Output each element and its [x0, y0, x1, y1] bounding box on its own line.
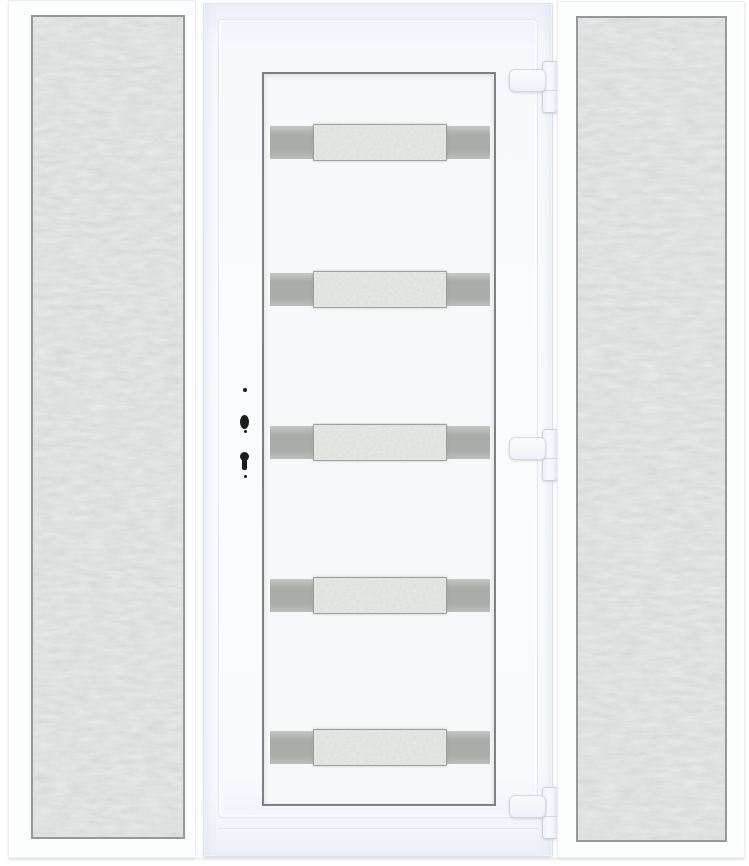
- strip-cap-right: [447, 731, 490, 764]
- door-unit: [203, 3, 553, 857]
- frosted-strip-texture: [314, 272, 446, 307]
- hinge-leaf: [509, 69, 546, 92]
- strip-cap-left: [270, 426, 313, 459]
- frosted-glass-texture: [578, 18, 725, 840]
- hinge-leaf: [509, 795, 546, 818]
- door-hinge-bottom: [507, 787, 554, 839]
- strip-cap-right: [447, 426, 490, 459]
- frosted-strip-texture: [314, 425, 446, 460]
- strip-cap-left: [270, 579, 313, 612]
- ground-shadow: [8, 858, 744, 861]
- screw-bore-icon: [244, 475, 247, 478]
- glass-strip: [270, 273, 490, 306]
- screw-bore-icon: [243, 388, 247, 392]
- strip-cap-right: [447, 579, 490, 612]
- left-sidelight-frosted-glass: [31, 15, 185, 839]
- screw-bore-icon: [244, 430, 247, 433]
- strip-cap-right: [447, 273, 490, 306]
- strip-frosted-center: [313, 271, 447, 308]
- frosted-strip-texture: [314, 125, 446, 160]
- keyhole-icon: [242, 459, 247, 470]
- cylinder-bore-icon: [240, 415, 249, 429]
- door-glass-panel: [262, 72, 496, 806]
- strip-cap-left: [270, 126, 313, 159]
- glass-strip: [270, 126, 490, 159]
- strip-cap-right: [447, 126, 490, 159]
- right-sidelight-panel: [557, 1, 745, 858]
- strip-cap-left: [270, 273, 313, 306]
- strip-cap-left: [270, 731, 313, 764]
- glass-strip: [270, 426, 490, 459]
- left-sidelight-panel: [8, 0, 196, 858]
- frosted-strip-texture: [314, 578, 446, 613]
- door-hinge-top: [507, 61, 554, 113]
- strip-frosted-center: [313, 424, 447, 461]
- strip-frosted-center: [313, 124, 447, 161]
- strip-frosted-center: [313, 729, 447, 766]
- hinge-leaf: [509, 437, 546, 460]
- door-hinge-middle: [507, 429, 554, 481]
- frosted-strip-texture: [314, 730, 446, 765]
- strip-frosted-center: [313, 577, 447, 614]
- glass-strip: [270, 731, 490, 764]
- door-product-photo: [0, 0, 749, 866]
- door-sill-line: [218, 828, 538, 829]
- frosted-glass-texture: [33, 17, 183, 837]
- right-sidelight-frosted-glass: [576, 16, 727, 842]
- glass-strip: [270, 579, 490, 612]
